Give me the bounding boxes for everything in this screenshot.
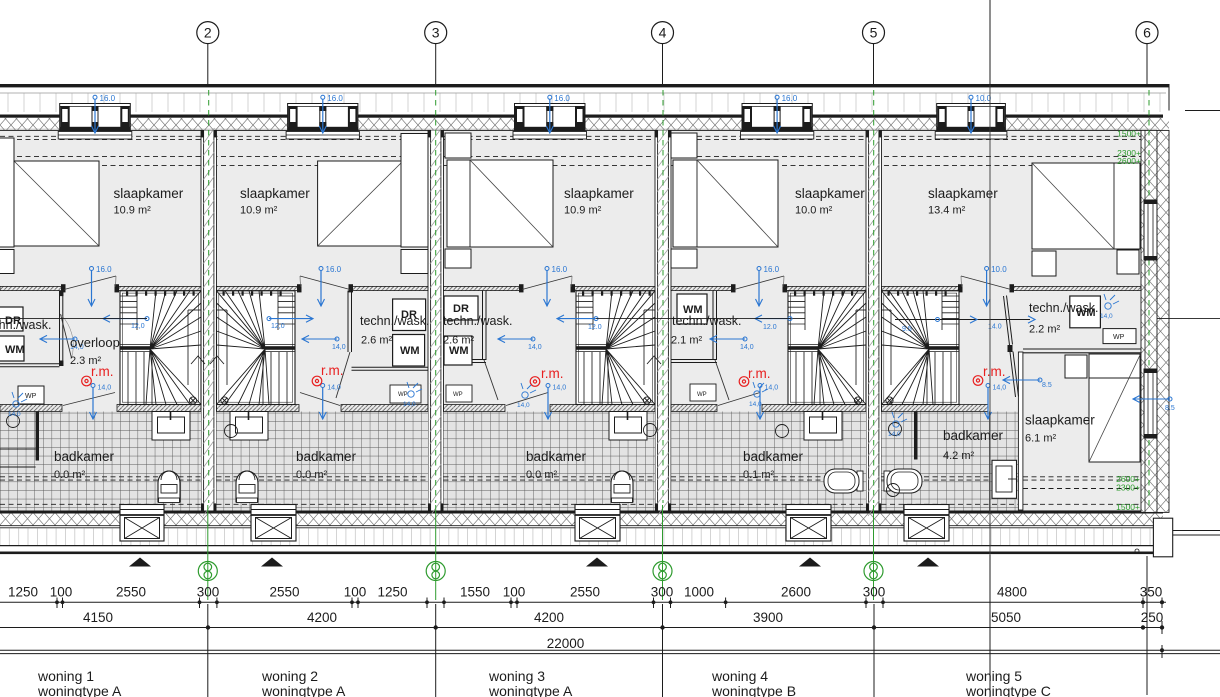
svg-text:2.1 m²: 2.1 m²	[671, 335, 703, 347]
svg-text:14,0: 14,0	[8, 411, 21, 418]
svg-text:4200: 4200	[307, 610, 337, 625]
svg-text:woning 5: woning 5	[965, 668, 1022, 684]
svg-text:14,0: 14,0	[740, 344, 754, 351]
svg-text:12,0: 12,0	[131, 323, 145, 330]
svg-text:1500+: 1500+	[1116, 502, 1140, 512]
svg-text:techn./wask.: techn./wask.	[0, 318, 51, 332]
svg-text:0.0 m²: 0.0 m²	[526, 469, 558, 481]
svg-text:14,0: 14,0	[98, 385, 112, 392]
svg-text:4: 4	[659, 25, 667, 41]
svg-text:WM: WM	[400, 345, 420, 357]
svg-text:12,0: 12,0	[271, 323, 285, 330]
svg-text:16.0: 16.0	[554, 94, 570, 103]
svg-text:woningtype A: woningtype A	[488, 683, 573, 697]
svg-text:woningtype A: woningtype A	[37, 683, 122, 697]
svg-text:WP: WP	[398, 392, 408, 398]
svg-text:WM: WM	[5, 344, 25, 356]
svg-text:1000: 1000	[684, 585, 714, 600]
svg-text:4150: 4150	[83, 610, 113, 625]
svg-text:1250: 1250	[377, 585, 407, 600]
svg-text:WP: WP	[453, 392, 463, 398]
svg-text:14,0: 14,0	[553, 385, 567, 392]
svg-text:0.1 m²: 0.1 m²	[743, 469, 775, 481]
svg-text:14,0: 14,0	[1100, 313, 1113, 320]
svg-text:woningtype A: woningtype A	[261, 683, 346, 697]
svg-text:14,0: 14,0	[528, 344, 542, 351]
svg-text:16.0: 16.0	[327, 94, 343, 103]
svg-text:1250: 1250	[8, 585, 38, 600]
svg-text:14,0: 14,0	[749, 401, 762, 408]
svg-text:techn./wask.: techn./wask.	[443, 314, 512, 328]
svg-text:4200: 4200	[534, 610, 564, 625]
svg-text:woningtype B: woningtype B	[711, 683, 796, 697]
svg-text:slaapkamer: slaapkamer	[114, 186, 184, 201]
svg-text:22000: 22000	[547, 636, 585, 651]
svg-text:3900: 3900	[753, 610, 783, 625]
svg-text:10.9 m²: 10.9 m²	[114, 205, 152, 217]
svg-text:badkamer: badkamer	[526, 449, 587, 464]
svg-text:16.0: 16.0	[782, 94, 798, 103]
svg-text:woningtype C: woningtype C	[965, 683, 1051, 697]
svg-text:14,0: 14,0	[327, 385, 341, 392]
svg-text:9.5: 9.5	[902, 326, 912, 333]
svg-text:10.0 m²: 10.0 m²	[795, 205, 833, 217]
svg-text:slaapkamer: slaapkamer	[240, 186, 310, 201]
svg-text:slaapkamer: slaapkamer	[928, 186, 998, 201]
svg-text:woning 2: woning 2	[261, 668, 318, 684]
svg-text:8.5: 8.5	[1165, 405, 1175, 412]
svg-text:r.m.: r.m.	[983, 364, 1006, 379]
svg-text:4.2 m²: 4.2 m²	[943, 450, 975, 462]
svg-text:100: 100	[344, 585, 367, 600]
svg-text:250: 250	[1141, 610, 1164, 625]
svg-text:slaapkamer: slaapkamer	[564, 186, 634, 201]
svg-text:13.4 m²: 13.4 m²	[928, 205, 966, 217]
svg-text:4800: 4800	[997, 585, 1027, 600]
svg-text:2600+: 2600+	[1117, 156, 1141, 166]
svg-text:2: 2	[204, 25, 212, 41]
svg-text:techn./wask.: techn./wask.	[360, 314, 429, 328]
svg-text:300: 300	[197, 585, 220, 600]
svg-text:12.0: 12.0	[588, 324, 602, 331]
svg-text:2300+: 2300+	[1116, 483, 1140, 493]
svg-text:100: 100	[50, 585, 73, 600]
svg-text:badkamer: badkamer	[54, 449, 115, 464]
svg-text:0.0 m²: 0.0 m²	[54, 469, 86, 481]
svg-text:6.1 m²: 6.1 m²	[1025, 433, 1057, 445]
svg-text:100: 100	[503, 585, 526, 600]
svg-text:2550: 2550	[269, 585, 299, 600]
svg-text:16.0: 16.0	[100, 94, 116, 103]
svg-text:14,0: 14,0	[993, 385, 1007, 392]
svg-text:16.0: 16.0	[326, 265, 342, 274]
svg-text:techn./wask.: techn./wask.	[672, 314, 741, 328]
svg-text:300: 300	[651, 585, 674, 600]
svg-text:350: 350	[1140, 585, 1163, 600]
svg-text:300: 300	[863, 585, 886, 600]
svg-text:16.0: 16.0	[96, 265, 112, 274]
svg-text:16.0: 16.0	[552, 265, 568, 274]
svg-text:5: 5	[870, 25, 878, 41]
svg-text:r.m.: r.m.	[541, 366, 564, 381]
svg-text:badkamer: badkamer	[296, 449, 357, 464]
svg-text:woning 4: woning 4	[711, 668, 768, 684]
svg-text:10.0: 10.0	[976, 94, 992, 103]
svg-text:techn./wask.: techn./wask.	[1029, 301, 1098, 315]
svg-text:2.6 m²: 2.6 m²	[443, 335, 475, 347]
svg-text:16.0: 16.0	[764, 265, 780, 274]
svg-text:10.9 m²: 10.9 m²	[240, 205, 278, 217]
svg-text:12.0: 12.0	[763, 324, 777, 331]
svg-text:14,0: 14,0	[403, 401, 416, 408]
svg-text:1500+: 1500+	[1117, 129, 1141, 139]
svg-text:slaapkamer: slaapkamer	[795, 186, 865, 201]
svg-text:6: 6	[1143, 25, 1151, 41]
svg-text:WP: WP	[1113, 334, 1125, 341]
svg-text:2600: 2600	[781, 585, 811, 600]
svg-text:0.0 m²: 0.0 m²	[296, 469, 328, 481]
svg-text:r.m.: r.m.	[321, 363, 344, 378]
svg-text:2.6 m²: 2.6 m²	[361, 335, 393, 347]
svg-text:14,0: 14,0	[517, 402, 530, 409]
svg-text:badkamer: badkamer	[943, 428, 1004, 443]
svg-text:14,0: 14,0	[765, 385, 779, 392]
svg-text:14,0: 14,0	[332, 344, 346, 351]
svg-text:2.3 m²: 2.3 m²	[70, 355, 102, 367]
svg-text:8.5: 8.5	[1042, 382, 1052, 389]
svg-text:woning 3: woning 3	[488, 668, 545, 684]
svg-text:3: 3	[432, 25, 440, 41]
svg-text:14,0: 14,0	[888, 431, 901, 438]
svg-text:1550: 1550	[460, 585, 490, 600]
svg-text:woning 1: woning 1	[37, 668, 94, 684]
svg-text:2550: 2550	[116, 585, 146, 600]
svg-text:overloop: overloop	[70, 335, 120, 350]
svg-text:WP: WP	[697, 392, 707, 398]
svg-text:2.2 m²: 2.2 m²	[1029, 324, 1061, 336]
svg-text:10.9 m²: 10.9 m²	[564, 205, 602, 217]
svg-text:r.m.: r.m.	[748, 366, 771, 381]
svg-text:slaapkamer: slaapkamer	[1025, 413, 1095, 428]
svg-text:badkamer: badkamer	[743, 449, 804, 464]
svg-text:5050: 5050	[991, 610, 1021, 625]
svg-text:2550: 2550	[570, 585, 600, 600]
svg-text:10.0: 10.0	[991, 265, 1007, 274]
svg-text:WM: WM	[449, 345, 469, 357]
